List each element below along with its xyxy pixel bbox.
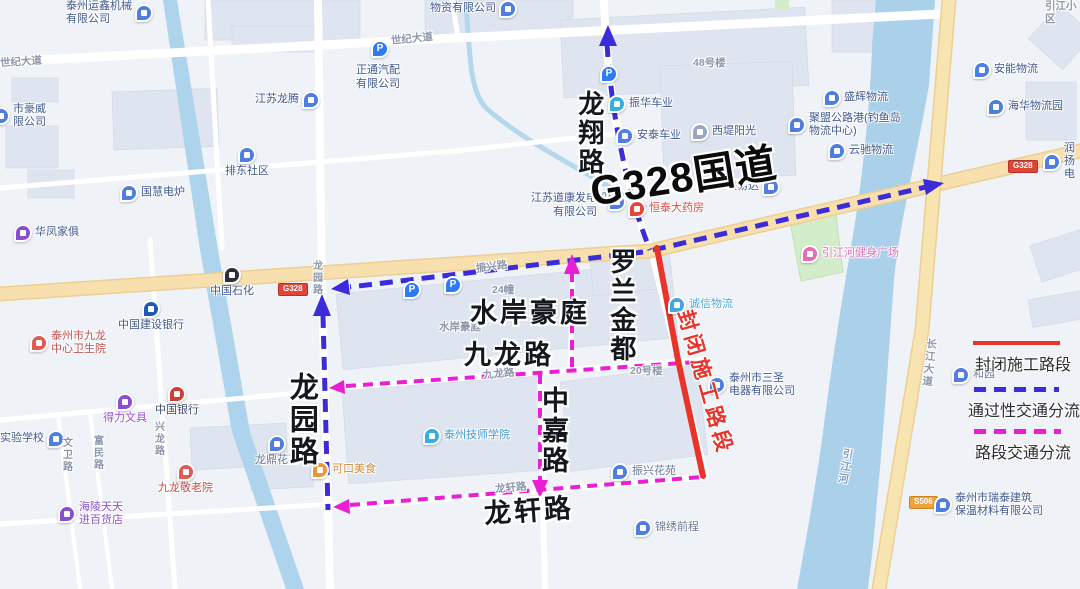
poi-label: 中国建设银行 xyxy=(118,319,184,332)
poi-haowei-clipped[interactable]: 市豪威 限公司 xyxy=(0,103,46,129)
poi-zhenxing-garden[interactable]: 振兴花苑 xyxy=(611,463,676,481)
road-label-xinglong-road: 兴龙路 xyxy=(151,421,164,457)
poi-haihua-logistics-park[interactable]: 海华物流园 xyxy=(987,98,1063,116)
parking-icon[interactable]: P xyxy=(444,276,462,294)
label-building-24: 24幢 xyxy=(492,284,514,297)
poi-label: 可口美食 xyxy=(332,463,376,476)
bank-icon xyxy=(142,300,160,318)
poi-label: 海陵天天 进百货店 xyxy=(79,501,123,527)
g328-shield: G328 xyxy=(1008,160,1038,173)
building-icon xyxy=(302,91,320,109)
poi-label: 安能物流 xyxy=(994,63,1038,76)
vehicle-shop-icon xyxy=(608,95,626,113)
legend-section-line-sample xyxy=(974,429,1061,434)
poi-ruitai-building-materials[interactable]: 泰州市瑞泰建筑 保温材料有限公司 xyxy=(934,492,1043,518)
poi-wuzi-company[interactable]: 物资有限公司 xyxy=(430,0,517,18)
legend-closed-label: 封闭施工路段 xyxy=(975,351,1071,375)
road-label-longyuan-road: 龙园路 xyxy=(309,260,322,296)
poi-hailing-store[interactable]: 海陵天天 进百货店 xyxy=(58,501,123,527)
poi-label: 安泰车业 xyxy=(637,129,681,142)
poi-label: 物资有限公司 xyxy=(430,2,496,15)
school-icon xyxy=(423,427,441,445)
poi-label: 引江河健身广场 xyxy=(822,247,899,260)
annotation-luolan-jindu: 罗兰金都 xyxy=(606,248,636,364)
annotation-longxuan-road: 龙轩路 xyxy=(483,493,575,530)
poi-label: 九龙敬老院 xyxy=(158,482,213,495)
poi-label: 海华物流园 xyxy=(1008,100,1063,113)
g328-shield: G328 xyxy=(278,283,308,296)
poi-deli-stationery[interactable]: 得力文具 xyxy=(103,393,147,425)
poi-label: 云驰物流 xyxy=(849,144,893,157)
building-icon xyxy=(952,366,970,384)
poi-label: 得力文具 xyxy=(103,412,147,425)
building-icon xyxy=(828,142,846,160)
parking-icon[interactable]: P xyxy=(600,65,618,83)
poi-label: 华凤家俱 xyxy=(35,226,79,239)
poi-shenghui-logistics[interactable]: 盛辉物流 xyxy=(823,89,888,107)
bank-icon xyxy=(168,385,186,403)
poi-zhenhua-vehicles[interactable]: 振华车业 xyxy=(608,95,673,113)
poi-label: 泰州市三圣 电器有限公司 xyxy=(729,372,795,398)
building-icon xyxy=(120,184,138,202)
poi-label: 中国银行 xyxy=(155,404,199,417)
building-icon xyxy=(616,127,634,145)
building-icon xyxy=(987,98,1005,116)
poi-label: 中国石化 xyxy=(210,285,254,298)
poi-taizhou-technician-college[interactable]: 泰州技师学院 xyxy=(423,427,510,445)
poi-label: 振华车业 xyxy=(629,97,673,110)
poi-label: 盛辉物流 xyxy=(844,91,888,104)
poi-antai-vehicles[interactable]: 安泰车业 xyxy=(616,127,681,145)
poi-yinjiang-gym-plaza[interactable]: 引江河健身广场 xyxy=(801,245,899,263)
poi-label: 市豪威 限公司 xyxy=(13,103,46,129)
legend-through-label: 通过性交通分流 xyxy=(968,397,1080,421)
parking-icon[interactable]: P xyxy=(371,40,389,58)
poi-bank-of-china[interactable]: 中国银行 xyxy=(155,385,199,417)
parking-icon[interactable]: P xyxy=(403,281,421,299)
gas-station-icon xyxy=(223,266,241,284)
poi-jiulong-health-center[interactable]: 泰州市九龙 中心卫生院 xyxy=(30,330,106,356)
poi-sinopec[interactable]: 中国石化 xyxy=(210,266,254,298)
poi-anneng-logistics[interactable]: 安能物流 xyxy=(973,61,1038,79)
label-building-20: 20号楼 xyxy=(630,365,663,378)
poi-huafeng-furniture[interactable]: 华凤家俱 xyxy=(14,224,79,242)
poi-label: 振兴花苑 xyxy=(632,465,676,478)
road-label-longxuan-road: 龙轩路 xyxy=(494,481,527,497)
poi-jinxiu-qiancheng[interactable]: 锦绣前程 xyxy=(634,519,699,537)
poi-yunxin-machinery[interactable]: 泰州运鑫机械 有限公司 xyxy=(66,0,153,26)
residence-icon xyxy=(634,519,652,537)
poi-yunchi-logistics[interactable]: 云驰物流 xyxy=(828,142,893,160)
building-icon xyxy=(238,146,256,164)
poi-label: 锦绣前程 xyxy=(655,521,699,534)
poi-kekou-food[interactable]: 可口美食 xyxy=(311,461,376,479)
legend-section-label: 路段交通分流 xyxy=(975,439,1071,463)
map-canvas[interactable]: G328 G328 S506 P P P P 泰州运鑫机械 有限公司 物资有限公… xyxy=(0,0,1080,589)
poi-label: 泰州市瑞泰建筑 保温材料有限公司 xyxy=(955,492,1043,518)
road-label-fumin-road: 富民路 xyxy=(90,435,103,471)
poi-guohui-electric[interactable]: 国慧电炉 xyxy=(120,184,185,202)
poi-jiulong-nursing-home[interactable]: 九龙敬老院 xyxy=(158,463,213,495)
poi-label: 聚盟公路港(钓鱼岛 物流中心) xyxy=(809,112,901,138)
poi-jumeng-highway-port[interactable]: 聚盟公路港(钓鱼岛 物流中心) xyxy=(788,112,901,138)
shop-icon xyxy=(58,505,76,523)
annotation-zhongjia-road: 中嘉路 xyxy=(537,386,568,476)
poi-label: 国慧电炉 xyxy=(141,186,185,199)
poi-label: 泰州技师学院 xyxy=(444,429,510,442)
poi-label: 排东社区 xyxy=(225,165,269,178)
road-label-wenwei-road: 文卫路 xyxy=(59,437,72,473)
annotation-longyuan-road: 龙园路 xyxy=(284,372,317,468)
residence-icon xyxy=(611,463,629,481)
legend-closed-line-sample xyxy=(973,341,1060,345)
legend-through-line-sample xyxy=(974,387,1059,392)
poi-jiangsu-longteng[interactable]: 江苏龙腾 xyxy=(255,91,320,109)
annotation-longxiang-road: 龙翔路 xyxy=(574,90,604,177)
label-building-48: 48号楼 xyxy=(693,57,726,70)
annotation-jiulong-road: 九龙路 xyxy=(464,340,554,371)
poi-ccb-bank[interactable]: 中国建设银行 xyxy=(118,300,184,332)
hospital-icon xyxy=(30,334,48,352)
shop-icon xyxy=(116,393,134,411)
building-icon xyxy=(499,0,517,18)
fitness-icon xyxy=(801,245,819,263)
building-icon xyxy=(135,4,153,22)
shop-icon xyxy=(14,224,32,242)
poi-experimental-school[interactable]: 实验学校 xyxy=(0,430,65,448)
building-icon xyxy=(1043,153,1061,171)
poi-label: 泰州市九龙 中心卫生院 xyxy=(51,330,106,356)
poi-paidong-community[interactable]: 排东社区 xyxy=(225,146,269,178)
poi-label: 泰州运鑫机械 有限公司 xyxy=(66,0,132,26)
poi-label: 实验学校 xyxy=(0,432,44,445)
poi-label: 润扬电 xyxy=(1064,142,1080,182)
label-yinjiang-community: 引江小区 xyxy=(1045,0,1080,26)
building-icon xyxy=(934,496,952,514)
poi-zhengtong-auto-label: 正通汽配 有限公司 xyxy=(356,64,400,92)
building-icon xyxy=(788,116,806,134)
building-icon xyxy=(973,61,991,79)
building-icon xyxy=(823,89,841,107)
poi-runyang-clipped[interactable]: 润扬电 xyxy=(1043,142,1080,182)
annotation-shuian-haoting: 水岸豪庭 xyxy=(470,298,590,329)
poi-label: 江苏龙腾 xyxy=(255,93,299,106)
care-home-icon xyxy=(177,463,195,481)
building-icon xyxy=(0,107,10,125)
